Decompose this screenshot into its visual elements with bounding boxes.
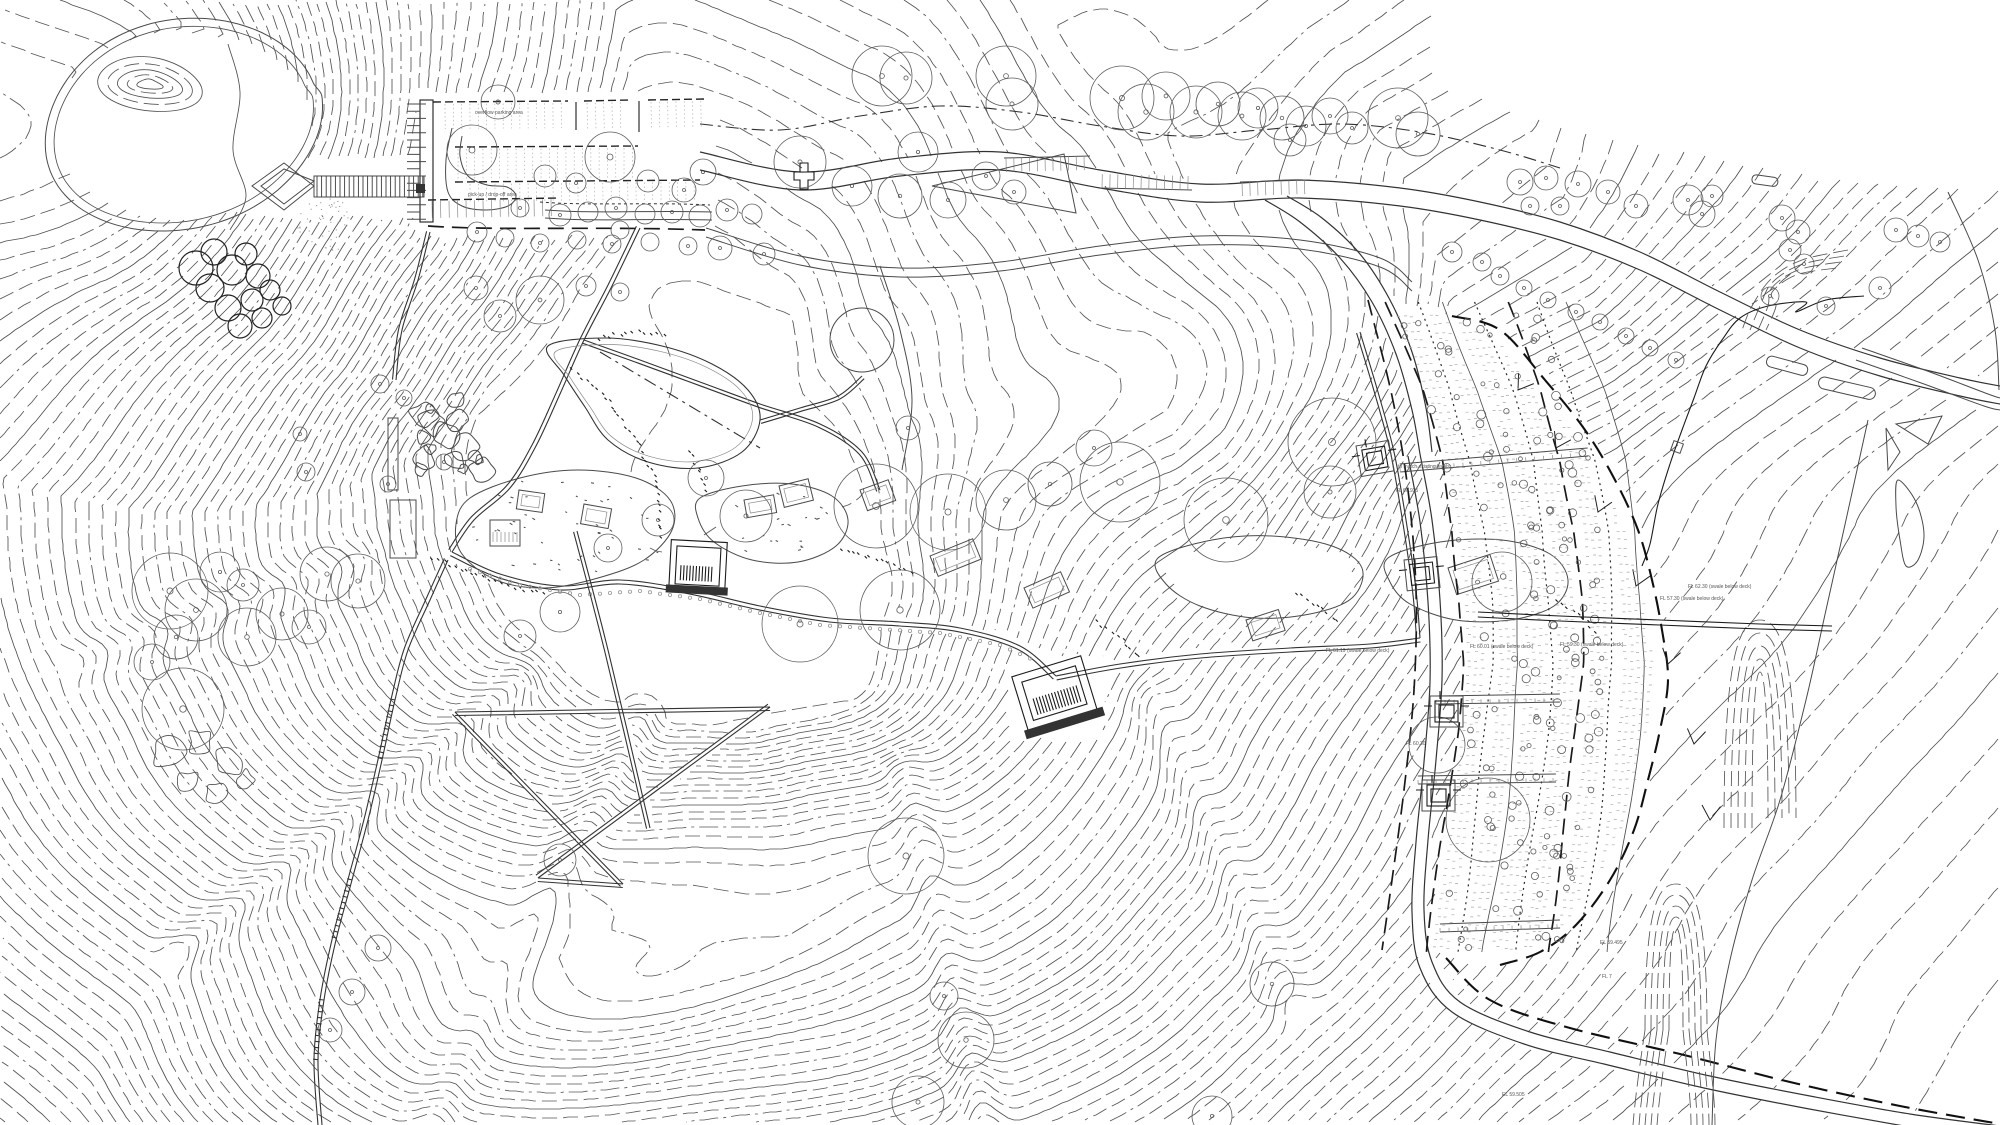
svg-text:FL 60.01 (swale below deck): FL 60.01 (swale below deck) (1470, 644, 1534, 650)
svg-text:FL 60.30: FL 60.30 (1406, 741, 1426, 747)
svg-text:FL 59.30 (swale below deck): FL 59.30 (swale below deck) (1560, 642, 1624, 648)
svg-text:EL 59.495: EL 59.495 (1600, 940, 1623, 946)
svg-text:FL 57.30 (swale below deck): FL 57.30 (swale below deck) (1660, 596, 1724, 602)
svg-text:overflow parking area: overflow parking area (475, 110, 523, 116)
svg-text:FL 62.30 (swale below deck): FL 62.30 (swale below deck) (1688, 584, 1752, 590)
svg-text:EL 59.505: EL 59.505 (1502, 1092, 1525, 1098)
svg-text:FL 60.925: FL 60.925 (1396, 488, 1419, 494)
svg-text:FL 7: FL 7 (1602, 974, 1612, 980)
svg-text:pick-up / drop-off area: pick-up / drop-off area (468, 192, 517, 198)
svg-text:to match existing levels: to match existing levels (1398, 464, 1450, 470)
svg-text:FL 61.19 (swale below deck): FL 61.19 (swale below deck) (1326, 648, 1390, 654)
